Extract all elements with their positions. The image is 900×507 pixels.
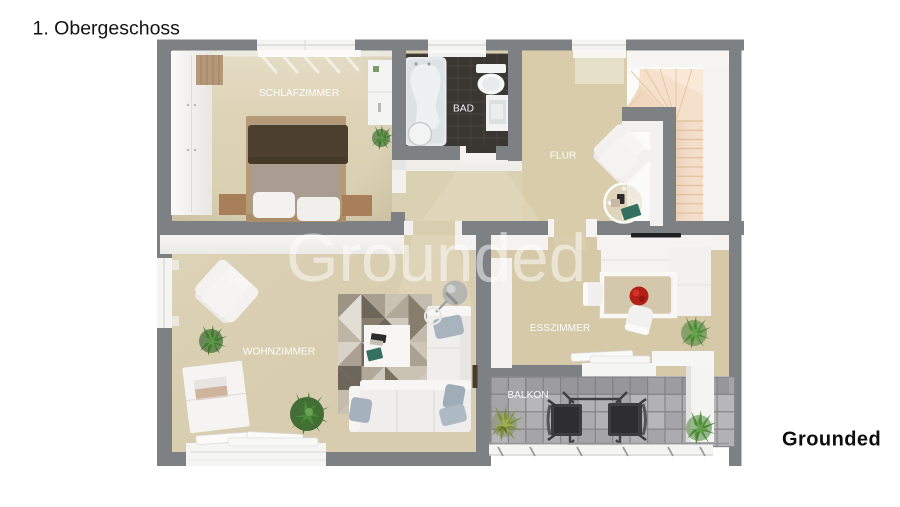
svg-text:BAD: BAD (453, 104, 474, 115)
svg-text:BALKON: BALKON (507, 390, 548, 401)
svg-text:Grounded: Grounded (286, 221, 586, 296)
svg-text:Grounded: Grounded (782, 429, 881, 451)
svg-text:ESSZIMMER: ESSZIMMER (530, 323, 591, 334)
svg-text:WOHNZIMMER: WOHNZIMMER (243, 347, 315, 358)
svg-text:FLUR: FLUR (550, 151, 577, 162)
svg-text:SCHLAFZIMMER: SCHLAFZIMMER (259, 88, 339, 99)
svg-text:1. Obergeschoss: 1. Obergeschoss (33, 18, 181, 40)
